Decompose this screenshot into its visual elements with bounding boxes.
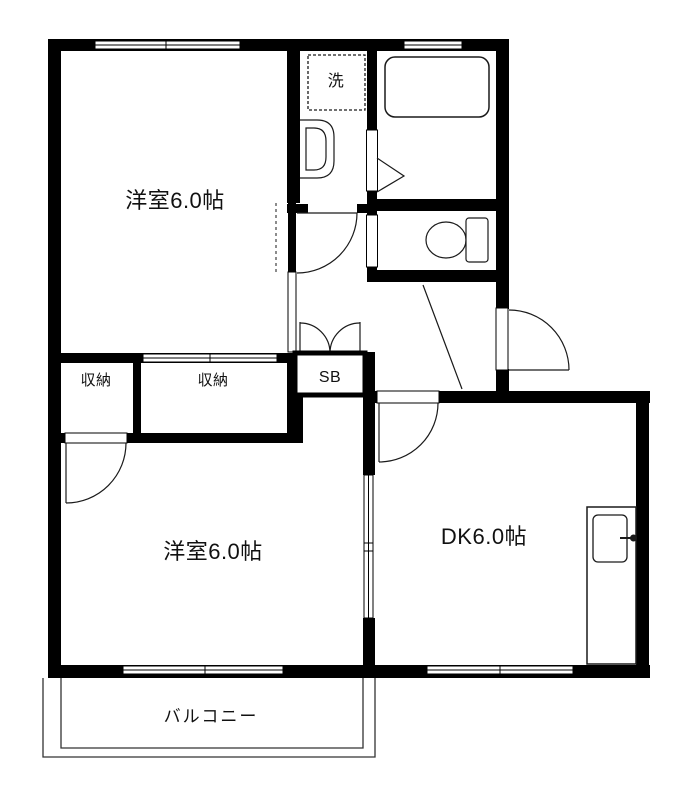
wall-washroom-bath-lower	[367, 191, 377, 200]
window-dk	[427, 666, 573, 674]
room-label-bedroom-top: 洋室6.0帖	[75, 189, 275, 213]
floor-plan-drawing	[0, 0, 700, 800]
wall-bedroomtop-right	[287, 39, 300, 203]
floor-plan: 洋室6.0帖 洗 収納 収納 SB 洋室6.0帖 DK6.0帖 バルコニー	[0, 0, 700, 800]
wall-washroom-bottom-left	[287, 204, 308, 213]
opening-bedroom-top-door	[288, 272, 296, 352]
dk-door-swing	[379, 403, 438, 462]
closet-sliding-doors	[143, 354, 277, 362]
bath-folding-door	[377, 158, 404, 192]
opening-bath-door	[367, 130, 378, 191]
shoebox-double-doors	[300, 322, 360, 354]
wall-dk-bedroom-upper	[363, 403, 375, 475]
toilet-icon	[426, 218, 488, 262]
sliding-door-bedroom-dk	[364, 475, 373, 618]
wall-washroom-bath-upper	[367, 51, 377, 131]
opening-toilet-door	[367, 215, 378, 267]
window-bedroom-top	[95, 41, 240, 49]
wall-dk-right	[636, 391, 649, 678]
room-label-laundry: 洗	[306, 73, 366, 91]
genkan-step-line	[423, 285, 462, 389]
wall-dk-bedroom-lower	[363, 618, 375, 665]
wall-right-upper	[496, 39, 509, 309]
wall-bath-toilet-divider	[367, 199, 509, 211]
room-label-closet-right: 収納	[163, 373, 263, 390]
washroom-door-swing	[297, 213, 357, 273]
entrance-door-swing	[509, 310, 569, 370]
room-label-shoebox: SB	[295, 369, 365, 387]
bathtub-icon	[385, 57, 489, 117]
window-bath	[404, 41, 462, 49]
wall-hall-thin	[288, 203, 296, 272]
closet-door-swing	[66, 443, 126, 503]
kitchen-sink-icon	[587, 507, 637, 664]
entrance-door-leaf	[496, 308, 508, 370]
room-label-balcony: バルコニー	[111, 708, 311, 727]
room-label-dk: DK6.0帖	[384, 525, 584, 549]
window-bedroom-bottom	[123, 666, 283, 674]
room-label-closet-left: 収納	[46, 373, 146, 390]
wall-toilet-bottom	[367, 270, 509, 282]
washbasin-icon	[300, 120, 334, 178]
room-label-bedroom-bottom: 洋室6.0帖	[113, 540, 313, 564]
opening-dk-door	[377, 391, 439, 403]
opening-closet-door	[65, 433, 127, 443]
